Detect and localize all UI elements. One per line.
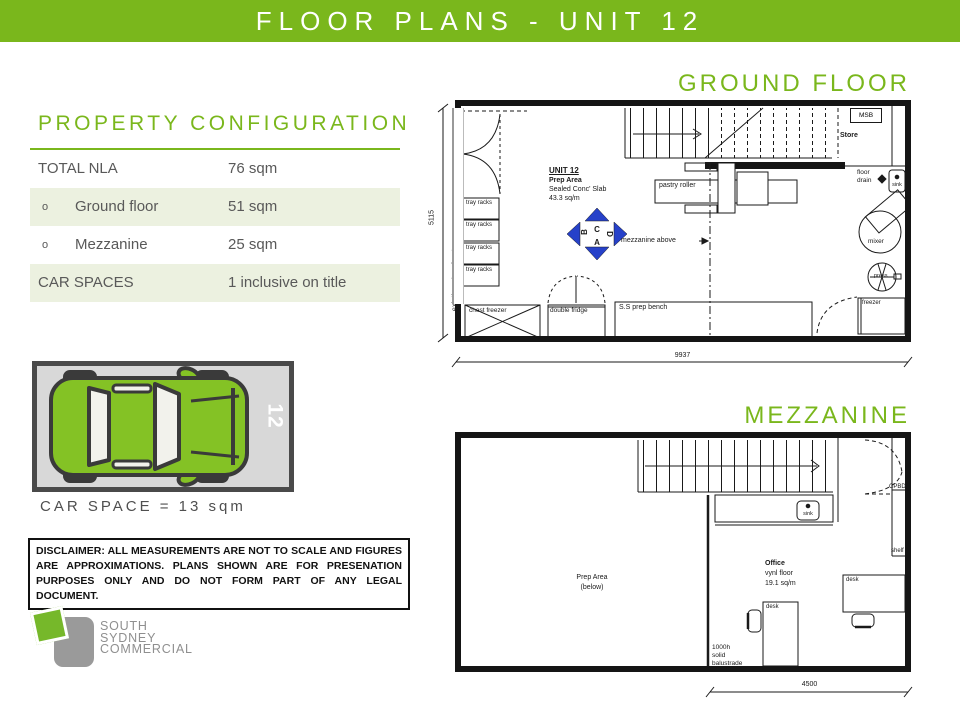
freezer-fixture xyxy=(817,297,905,334)
mezzanine-above-label: mezzanine above xyxy=(621,237,676,245)
row-label: TOTAL NLA xyxy=(38,150,118,188)
shelf-label: shelf xyxy=(891,548,904,555)
table-row-ground-floor: o Ground floor 51 sqm xyxy=(30,188,400,226)
row-label: CAR SPACES xyxy=(38,264,134,302)
chest-freezer-label: chest freezer xyxy=(469,307,507,314)
sink-label: sink xyxy=(797,511,819,517)
balustrade-label-1: 1000h xyxy=(712,644,730,651)
prep-bench-label: S.S prep bench xyxy=(619,304,667,312)
prep-area-label-1: Prep Area xyxy=(557,574,627,582)
prep-area-label-2: (below) xyxy=(557,584,627,592)
entry-doors xyxy=(461,111,527,194)
disclaimer-box: DISCLAIMER: ALL MEASUREMENTS ARE NOT TO … xyxy=(28,538,410,610)
floor-drain-icon xyxy=(878,175,886,183)
mezzanine-plan-geometry xyxy=(461,438,905,666)
desk-label: desk xyxy=(766,604,779,611)
tray-racks-label: tray racks xyxy=(466,222,492,229)
sink-label: sink xyxy=(889,182,905,188)
desk-vertical xyxy=(748,602,798,666)
office-label-1: Office xyxy=(765,560,785,568)
row-label: Ground floor xyxy=(75,188,158,226)
bench-fixture xyxy=(715,495,833,525)
car-space-number: 12 xyxy=(262,403,286,428)
press-label: press xyxy=(874,273,887,279)
row-bullet: o xyxy=(42,226,48,264)
row-value: 1 inclusive on title xyxy=(228,264,346,302)
msb-label-box: MSB xyxy=(850,108,882,123)
logo-text: SOUTH SYDNEY COMMERCIAL xyxy=(100,621,193,656)
ground-floor-plan: C A B D MSB Store floor drain sink mixer… xyxy=(455,100,911,342)
unit-area-label: 43.3 sq/m xyxy=(549,195,580,203)
compass-letter-left: B xyxy=(580,229,589,235)
pastry-roller-label: pastry roller xyxy=(659,182,696,190)
compass-icon: C A B D xyxy=(567,208,627,260)
title-bar: FLOOR PLANS - UNIT 12 xyxy=(0,0,960,42)
row-bullet: o xyxy=(42,188,48,226)
row-value: 51 sqm xyxy=(228,188,277,226)
row-value: 76 sqm xyxy=(228,150,277,188)
unit-slab-label: Sealed Conc' Slab xyxy=(549,186,606,194)
balustrade-label-2: solid xyxy=(712,652,725,659)
floor-drain-label-2: drain xyxy=(857,177,871,184)
row-value: 25 sqm xyxy=(228,226,277,264)
car-top-view-icon xyxy=(37,366,289,487)
table-row-mezzanine: o Mezzanine 25 sqm xyxy=(30,226,400,264)
cupboard-column xyxy=(892,438,905,556)
ground-floor-heading: GROUND FLOOR xyxy=(600,70,910,98)
mezzanine-above-arrow xyxy=(699,238,708,244)
tray-racks-label: tray racks xyxy=(466,245,492,252)
gf-height-dimension: 5115 xyxy=(429,203,436,233)
mezzanine-heading: MEZZANINE xyxy=(600,402,910,430)
sink-icon xyxy=(889,170,905,192)
balustrade-label-3: balustrade xyxy=(712,660,742,667)
staircase xyxy=(638,440,833,492)
unit-area-type-label: Prep Area xyxy=(549,177,582,185)
mezzanine-plan: CPBD shelf sink Prep Area (below) Office… xyxy=(455,432,911,672)
office-label-2: vynl floor xyxy=(765,570,793,578)
floor-drain-label-1: floor xyxy=(857,169,870,176)
mixer-label: mixer xyxy=(868,238,884,245)
unit-name-label: UNIT 12 xyxy=(549,166,579,175)
tray-racks-label: tray racks xyxy=(466,267,492,274)
gf-width-dimension: 9937 xyxy=(450,352,915,359)
logo-line-3: COMMERCIAL xyxy=(100,644,193,656)
double-fridge-label: double fridge xyxy=(550,307,588,314)
logo-green-square xyxy=(30,606,69,645)
page-title: FLOOR PLANS - UNIT 12 xyxy=(0,0,960,42)
compass-letter-bottom: A xyxy=(594,238,600,247)
table-row-car-spaces: CAR SPACES 1 inclusive on title xyxy=(30,264,400,302)
desk-label: desk xyxy=(846,577,859,584)
tray-racks-label: tray racks xyxy=(466,200,492,207)
freezer-label: freezer xyxy=(862,300,881,307)
double-fridge-fixture xyxy=(548,276,605,336)
compass-letter-right: D xyxy=(605,231,614,237)
car-space-graphic: 12 xyxy=(32,361,294,492)
ground-floor-plan-geometry: C A B D xyxy=(461,106,905,336)
staircase xyxy=(625,108,832,158)
compass-letter-top: C xyxy=(594,225,600,234)
car-space-caption: CAR SPACE = 13 sqm xyxy=(40,498,246,515)
store-label: Store xyxy=(840,132,858,140)
office-label-3: 19.1 sq/m xyxy=(765,580,796,588)
property-configuration-heading: PROPERTY CONFIGURATION xyxy=(38,112,410,136)
table-row-total-nla: TOTAL NLA 76 sqm xyxy=(30,150,400,188)
property-configuration-table: TOTAL NLA 76 sqm o Ground floor 51 sqm o… xyxy=(30,150,400,302)
mz-width-dimension: 4500 xyxy=(702,681,917,688)
floor-plan-page: FLOOR PLANS - UNIT 12 PROPERTY CONFIGURA… xyxy=(0,0,960,720)
company-logo: SOUTH SYDNEY COMMERCIAL xyxy=(30,606,250,686)
row-label: Mezzanine xyxy=(75,226,148,264)
shop-front-glazing xyxy=(452,108,464,304)
cpbd-label: CPBD xyxy=(889,484,906,491)
